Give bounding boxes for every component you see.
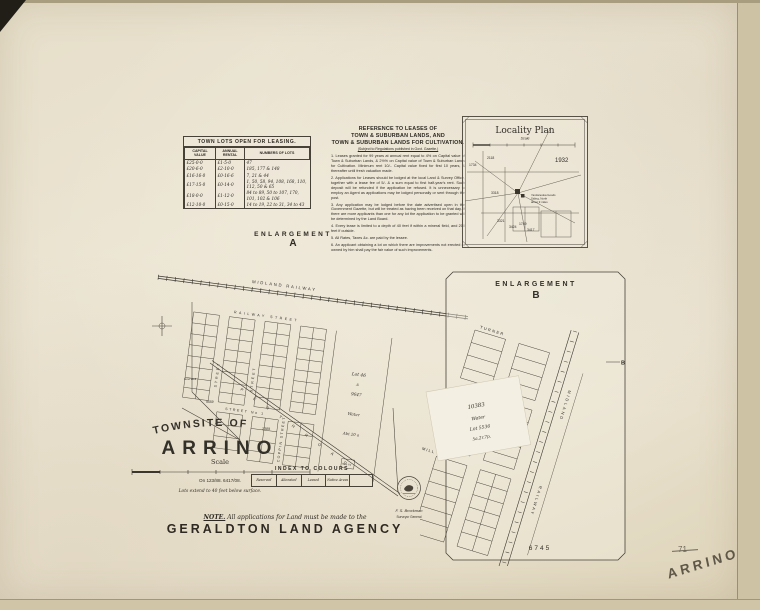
cell-lots: 84 to 89, 50 to 107, 170, 101, 102 & 106 [245,190,310,202]
lot-46-label: Lot 46 [350,372,366,379]
street-label-vertical: STREET [214,362,221,388]
svg-text:TOWNSITE OF: TOWNSITE OF [152,417,249,437]
geraldton-land-agency: GERALDTON LAND AGENCY [164,522,406,536]
locality-lot-number: 3424 [509,225,517,229]
scale-label: Scale [211,458,229,466]
lot-46-number: 9647 [351,391,363,397]
enlargement-b-plan: ENLARGEMENT B TURNER DALY MILL [420,266,632,566]
index-cell-blank [350,475,373,487]
file-reference: On 123/88. 6417/08. [199,478,241,483]
col-numbers-of-lots: NUMBERS OF LOTS [245,148,310,160]
cell-lots: 1, 50, 58, 94, 108, 168, 110, 112, 50 & … [245,178,310,190]
sheet-bottom-edge [0,599,760,610]
town-lots-table-title: TOWN LOTS OPEN FOR LEASING. [184,137,310,147]
locality-plan-scale-label: Scale [521,137,530,141]
locality-year: 1932 [555,158,569,164]
reference-subtitle: (Subject to Regulations published in Gov… [331,147,465,151]
cell-capital: £18-0-0 [185,190,216,202]
reference-item: 5. All Rates, Taxes &c. are paid by the … [331,236,465,241]
locality-lot-number: 3318 [491,191,499,195]
index-to-colours: INDEX TO COLOURS Reserved Alienated Leas… [251,466,373,487]
lot-46-parcel: Lot 46 A 9647 Water Abt 20 a [318,331,392,482]
locality-lot-number: 3321 [497,219,505,223]
parcel-6745: 6745 [529,545,551,552]
govt-well-label: Govt Well [184,377,196,381]
reference-item: 3. Any application may be lodged before … [331,203,465,223]
cell-rental: £1-5-0 [216,159,245,166]
reference-item: 4. Every lease is limited to a depth of … [331,224,465,234]
town-lots-table: TOWN LOTS OPEN FOR LEASING. CAPITAL VALU… [183,136,311,209]
lot-46-water: Water [347,411,361,418]
townsite-name: ARRINO [162,438,279,459]
title-block: TOWNSITE OF ARRINO Scale On 123/88. 6417… [118,402,328,502]
reference-title-3: TOWN & SUBURBAN LANDS FOR CULTIVATION. [331,140,465,147]
railway-street-label: RAILWAY STREET [234,310,300,323]
note-text: All applications for Land must be made t… [225,514,366,521]
sheet-right-edge [737,0,760,610]
index-cell-reserved: Reserved [252,475,277,487]
locality-lot-number: 2118 [487,156,494,160]
stamp-title: Surveyor General [397,515,422,519]
index-cell-alienated: Alienated [276,475,301,487]
locality-note: about 9 miles [531,200,548,204]
lot-46-a: A [355,383,359,387]
locality-plan-title: Locality Plan [495,126,554,136]
index-cell-leased: Leased [301,475,325,487]
cell-lots: 47 [245,159,310,166]
enlargement-a-letter: A [250,238,336,249]
index-title: INDEX TO COLOURS [251,466,373,472]
sheet-top-edge [0,0,760,3]
cell-capital: £12-10-0 [185,201,216,207]
index-cell-native: Native Areas [326,475,350,487]
cell-lots: 14 to 19, 22 to 31, 34 to 43 [245,201,310,207]
cell-rental: £1-12-0 [216,190,245,202]
locality-plan: Locality Plan Scale 1932 2118 1734 3318 … [461,115,589,249]
col-annual-rental: ANNUAL RENTAL [216,148,245,160]
enlargement-b-letter: B [532,290,539,301]
cell-rental: £0-15-0 [216,201,245,207]
page-number-pencil: 71 [678,545,687,554]
reference-title-2: TOWN & SUBURBAN LANDS, AND [331,133,465,140]
table-row: £17-15-0 £0-14-0 1, 50, 58, 94, 108, 168… [185,178,310,190]
locality-lot-number: 3417 [527,228,535,232]
enlargement-b-label: ENLARGEMENT [495,281,577,288]
reference-item: 1. Leases granted for 99 years at annual… [331,154,465,174]
note-prefix: NOTE. [203,514,225,521]
note-block: NOTE. All applications for Land must be … [164,514,406,536]
enlargement-a-heading: ENLARGEMENT A [250,231,336,249]
mill-street-label: MILL [421,446,436,455]
cell-capital: £25-0-0 [185,159,216,166]
cell-rental: £0-14-0 [216,178,245,190]
col-capital-value: CAPITAL VALUE [185,148,216,160]
survey-cross-icon [152,316,172,336]
section-marker-letter: B [621,361,625,367]
locality-lot-number: 1749 [519,222,527,226]
seal-icon [398,477,421,500]
midland-railway-label: MIDLAND RAILWAY [252,279,317,292]
table-row: £18-0-0 £1-12-0 84 to 89, 50 to 107, 170… [185,190,310,202]
table-row: £12-10-0 £0-15-0 14 to 19, 22 to 31, 34 … [185,201,310,207]
townsite-of-label: TOWNSITE OF [152,417,249,437]
cell-capital: £17-15-0 [185,178,216,190]
lot-46-area: Abt 20 a [342,430,360,437]
table-row: £25-0-0 £1-5-0 47 [185,159,310,166]
reference-item: 2. Applications for Leases should be lod… [331,176,465,201]
street-label-vertical: STREET [249,366,256,392]
reference-title-1: REFERENCE TO LEASES OF [331,126,465,133]
locality-lot-number: 1734 [469,163,477,167]
reference-block: REFERENCE TO LEASES OF TOWN & SUBURBAN L… [331,126,465,255]
enlargement-a-label: ENLARGEMENT [250,231,336,238]
depth-note: Lots extend to 40 feet below surface. [178,489,262,494]
